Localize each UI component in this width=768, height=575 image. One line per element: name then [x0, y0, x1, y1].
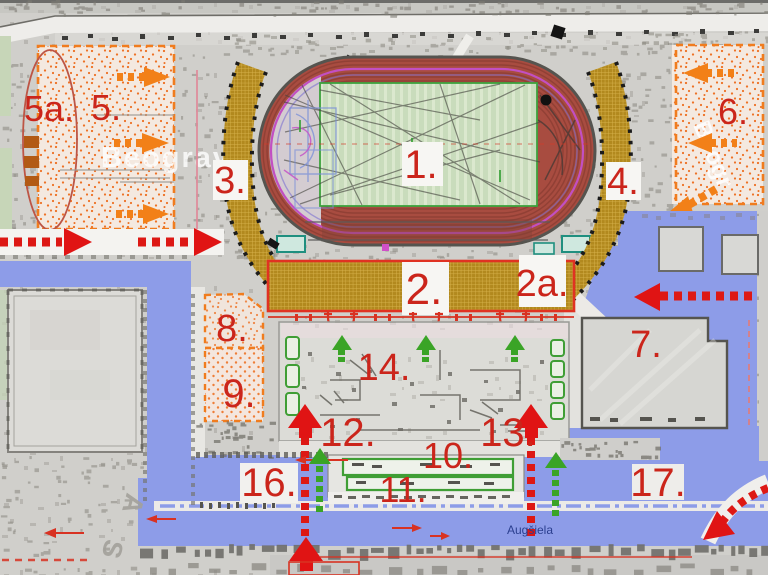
svg-text:Augšiela: Augšiela [507, 523, 553, 537]
svg-text:10.: 10. [423, 435, 473, 476]
svg-text:11.: 11. [379, 469, 426, 510]
svg-text:5.: 5. [91, 87, 121, 128]
svg-text:9.: 9. [222, 372, 255, 416]
svg-text:2.: 2. [406, 265, 443, 314]
svg-text:Beograv: Beograv [101, 142, 231, 174]
svg-text:17.: 17. [630, 461, 686, 505]
svg-text:13.: 13. [480, 411, 536, 455]
svg-text:2a.: 2a. [516, 263, 569, 305]
svg-text:8.: 8. [216, 308, 248, 350]
svg-text:16.: 16. [241, 461, 297, 505]
svg-text:4.: 4. [607, 161, 639, 203]
svg-text:1.: 1. [404, 143, 437, 187]
svg-text:14.: 14. [358, 347, 411, 389]
svg-text:3.: 3. [214, 160, 246, 202]
svg-text:12.: 12. [320, 411, 376, 455]
svg-text:7.: 7. [630, 324, 662, 366]
svg-text:5a.: 5a. [24, 88, 74, 129]
svg-text:6.: 6. [718, 91, 748, 132]
